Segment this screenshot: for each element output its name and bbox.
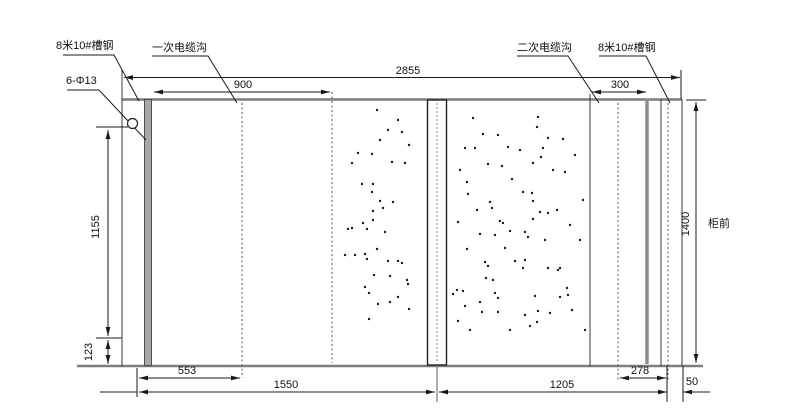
- foundation-plan-drawing: 8米10#槽钢 一次电缆沟 二次电缆沟 8米10#槽钢 6-Φ13 柜前 285…: [0, 0, 790, 417]
- callout-bolt-holes: 6-Φ13: [66, 75, 97, 87]
- dim-text-left-upper: 1155: [90, 215, 102, 239]
- stipple-dots: [344, 109, 586, 331]
- leader-right-channel: [599, 56, 670, 103]
- callout-primary-trench: 一次电缆沟: [152, 42, 207, 54]
- plan-geometry: [0, 0, 790, 417]
- foundation-outline: [77, 70, 703, 366]
- leader-primary-trench: [152, 56, 237, 103]
- dim-text-secondary-span: 300: [611, 79, 629, 91]
- dim-text-overall-width: 2855: [396, 65, 420, 77]
- dim-text-bottom-50: 50: [686, 376, 698, 388]
- dim-text-primary-span: 900: [234, 79, 252, 91]
- callout-leaders: [63, 55, 670, 140]
- leader-secondary-trench: [517, 56, 599, 103]
- cable-trench-lines: [242, 92, 668, 380]
- extension-lines: [96, 70, 706, 402]
- channel-steel-members: [145, 94, 662, 366]
- dim-text-right-height: 1400: [680, 212, 692, 236]
- bolt-hole-circle: [128, 119, 138, 129]
- callout-right-channel: 8米10#槽钢: [598, 42, 655, 54]
- callout-secondary-trench: 二次电缆沟: [517, 42, 572, 54]
- dim-text-bottom-278: 278: [631, 365, 649, 377]
- callout-cabinet-front: 柜前: [708, 218, 730, 230]
- leader-bolt-holes: [67, 90, 146, 140]
- callout-left-channel: 8米10#槽钢: [56, 40, 113, 52]
- dim-arrow-50: [683, 390, 692, 395]
- dim-text-bottom-1205: 1205: [550, 379, 574, 391]
- dim-text-bottom-553: 553: [178, 365, 196, 377]
- dim-text-bottom-1550: 1550: [274, 379, 298, 391]
- dim-text-left-lower: 123: [83, 343, 95, 361]
